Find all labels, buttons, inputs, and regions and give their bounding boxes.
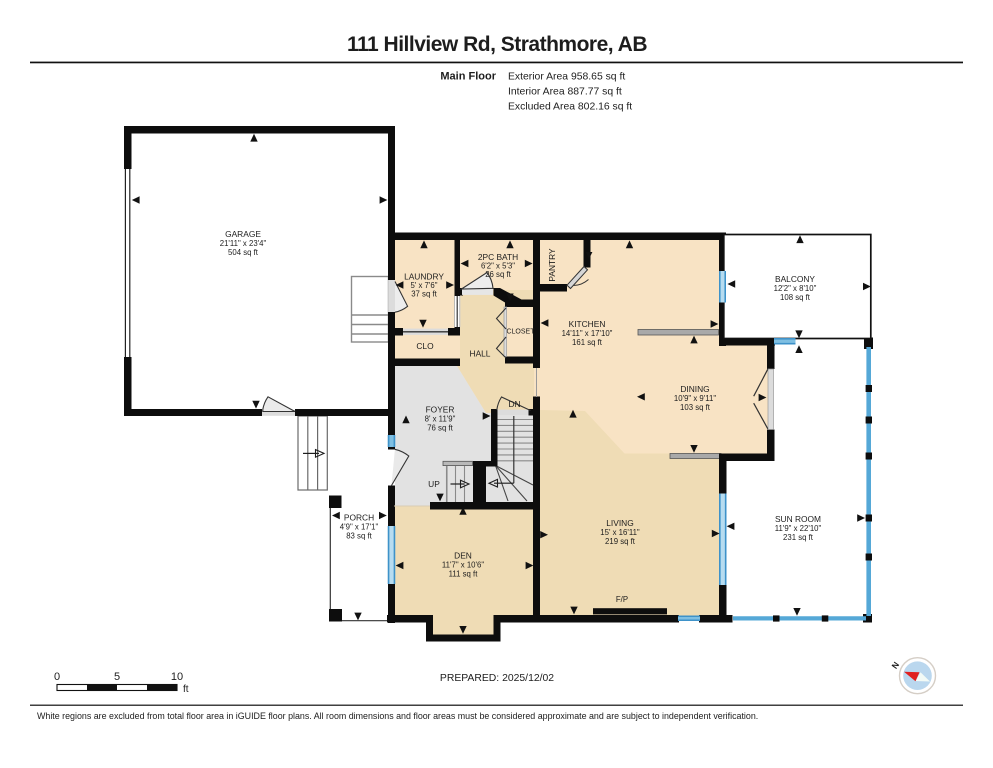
svg-text:111 sq ft: 111 sq ft <box>449 570 479 579</box>
svg-text:DN: DN <box>508 399 520 409</box>
svg-text:76 sq ft: 76 sq ft <box>427 424 453 433</box>
svg-text:4'9" x 17'1": 4'9" x 17'1" <box>340 523 379 532</box>
svg-text:KITCHEN: KITCHEN <box>569 319 606 329</box>
svg-text:10'9" x 9'11": 10'9" x 9'11" <box>674 394 716 403</box>
svg-text:SUN ROOM: SUN ROOM <box>775 514 821 524</box>
svg-text:0: 0 <box>54 671 60 683</box>
svg-text:CLO: CLO <box>416 341 434 351</box>
svg-text:219 sq ft: 219 sq ft <box>605 537 636 546</box>
svg-text:CLOSET: CLOSET <box>506 329 535 336</box>
svg-text:GARAGE: GARAGE <box>225 229 261 239</box>
svg-text:11'9" x 22'10": 11'9" x 22'10" <box>775 524 822 533</box>
svg-text:231 sq ft: 231 sq ft <box>783 533 814 542</box>
svg-text:DEN: DEN <box>454 551 472 561</box>
svg-text:FOYER: FOYER <box>426 405 455 415</box>
svg-text:UP: UP <box>428 479 440 489</box>
svg-text:10: 10 <box>171 671 183 683</box>
svg-text:108 sq ft: 108 sq ft <box>780 293 811 302</box>
svg-text:111 Hillview Rd, Strathmore, A: 111 Hillview Rd, Strathmore, AB <box>347 33 647 56</box>
svg-text:PANTRY: PANTRY <box>547 248 557 282</box>
svg-text:Interior Area 887.77 sq ft: Interior Area 887.77 sq ft <box>508 87 622 98</box>
svg-text:15' x 16'11": 15' x 16'11" <box>600 528 640 537</box>
svg-text:ft: ft <box>183 684 189 695</box>
svg-text:LIVING: LIVING <box>606 518 633 528</box>
svg-text:8' x 11'9": 8' x 11'9" <box>425 415 456 424</box>
svg-text:LAUNDRY: LAUNDRY <box>404 272 444 282</box>
svg-text:12'2" x 8'10": 12'2" x 8'10" <box>774 284 817 293</box>
svg-text:5: 5 <box>114 671 120 683</box>
svg-text:Exterior Area 958.65 sq ft: Exterior Area 958.65 sq ft <box>508 72 625 83</box>
svg-text:PREPARED: 2025/12/02: PREPARED: 2025/12/02 <box>440 673 554 684</box>
svg-text:14'11" x 17'10": 14'11" x 17'10" <box>562 329 613 338</box>
svg-text:26 sq ft: 26 sq ft <box>485 270 511 279</box>
svg-text:21'11" x 23'4": 21'11" x 23'4" <box>220 239 267 248</box>
svg-text:HALL: HALL <box>470 349 491 359</box>
svg-text:83 sq ft: 83 sq ft <box>346 532 372 541</box>
svg-text:161 sq ft: 161 sq ft <box>572 338 603 347</box>
svg-text:11'7" x 10'6": 11'7" x 10'6" <box>442 561 484 570</box>
svg-text:Main Floor: Main Floor <box>440 71 496 83</box>
svg-text:Excluded Area 802.16 sq ft: Excluded Area 802.16 sq ft <box>508 102 632 113</box>
svg-text:37 sq ft: 37 sq ft <box>411 290 437 299</box>
svg-text:DINING: DINING <box>680 384 709 394</box>
svg-text:103 sq ft: 103 sq ft <box>680 403 711 412</box>
svg-text:2PC BATH: 2PC BATH <box>478 252 518 262</box>
svg-text:White regions are excluded fro: White regions are excluded from total fl… <box>37 711 758 721</box>
svg-text:504 sq ft: 504 sq ft <box>228 248 259 257</box>
svg-text:BALCONY: BALCONY <box>775 274 815 284</box>
svg-text:F/P: F/P <box>616 595 628 604</box>
svg-text:PORCH: PORCH <box>344 513 374 523</box>
svg-text:N: N <box>889 660 901 671</box>
